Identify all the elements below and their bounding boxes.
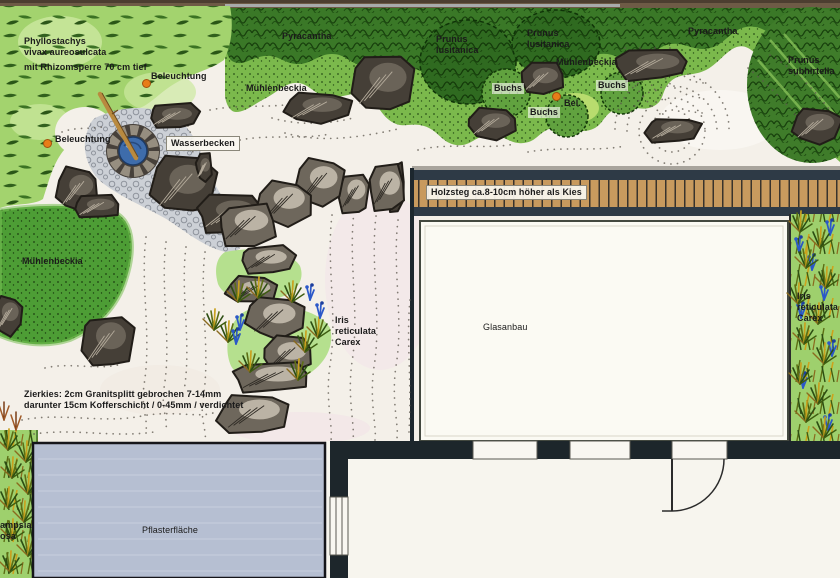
label-buchs-3: Buchs: [528, 107, 560, 118]
rock: [82, 317, 135, 365]
rock: [351, 57, 414, 110]
label-muehlenbeckia-left: Mühlenbeckia: [22, 256, 83, 267]
label-pflasterflaeche: Pflasterfläche: [142, 525, 198, 536]
planting-strip-right: [787, 211, 840, 442]
label-iris-mid: Iris reticulata Carex: [335, 315, 376, 348]
stepping-stone: [242, 245, 296, 274]
label-pyracantha-right: Pyracantha: [688, 26, 738, 37]
label-wasserbecken: Wasserbecken: [166, 136, 240, 151]
label-pyracantha-left: Pyracantha: [282, 31, 332, 42]
label-prunus-lusitanica-2: Prunus lusitanica: [527, 28, 570, 50]
label-beleuchtung-left: Beleuchtung: [55, 134, 111, 145]
light-point-icon: [142, 79, 151, 88]
label-prunus-subhirtella: Prunus subhirtella: [788, 55, 835, 77]
stepping-stone: [370, 164, 404, 211]
label-grass-species-partial: ampsia osa: [0, 520, 32, 542]
rock: [151, 103, 200, 128]
deck-edge-line: [410, 168, 414, 443]
light-point-icon: [552, 92, 561, 101]
label-beleuchtung-top: Beleuchtung: [151, 71, 207, 82]
rock: [644, 119, 702, 142]
paved-area: [33, 443, 325, 578]
label-buchs-1: Buchs: [492, 83, 524, 94]
window: [330, 497, 348, 555]
door-opening: [672, 441, 727, 459]
window: [570, 441, 630, 459]
label-iris-right: Iris reticulata Carex: [797, 291, 838, 324]
label-prunus-lusitanica-1: Prunus lusitanica: [436, 34, 479, 56]
label-muehlenbeckia-top: Mühlenbeckia: [246, 83, 307, 94]
stepping-stone: [221, 204, 276, 246]
label-muehlenbeckia-mid: Mühlenbeckia: [556, 57, 617, 68]
label-glasanbau: Glasanbau: [483, 322, 527, 333]
glasanbau-area: [420, 221, 788, 441]
label-phyllostachys: Phyllostachys vivax aureosulcata: [24, 36, 106, 58]
label-beleuchtung-small: Bel.: [564, 98, 581, 109]
garden-plan: Phyllostachys vivax aureosulcata mit Rhi…: [0, 0, 840, 578]
rock: [75, 195, 118, 217]
label-buchs-2: Buchs: [596, 80, 628, 91]
label-holzsteg: Holzsteg ca.8-10cm höher als Kies: [426, 185, 587, 200]
label-zierkies: Zierkies: 2cm Granitsplitt gebrochen 7-1…: [24, 389, 243, 411]
light-point-icon: [43, 139, 52, 148]
window: [473, 441, 537, 459]
label-rhizomsperre: mit Rhizomsperre 70 cm tief: [24, 62, 147, 73]
plan-canvas: [0, 0, 840, 578]
building: [326, 441, 840, 578]
